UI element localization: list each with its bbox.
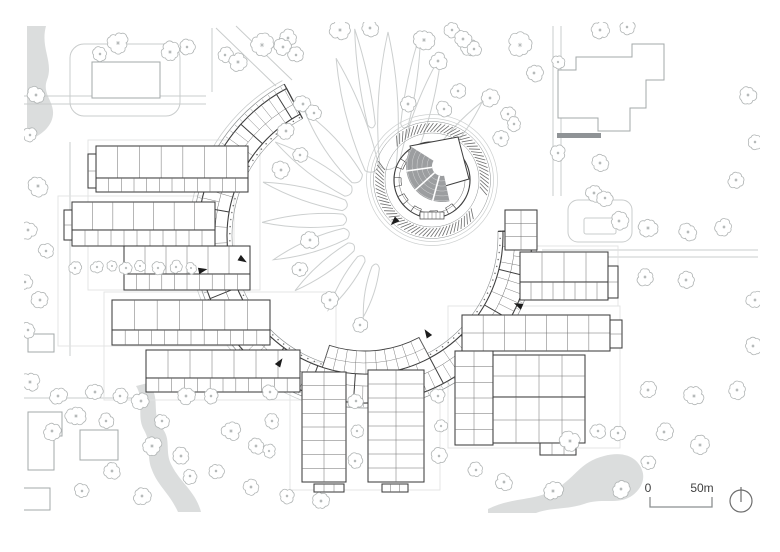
north-arrow-icon [730,487,752,512]
scale-bar: 0 50m [645,481,714,507]
site-plan-page: 0 50m [0,0,780,552]
scale-zero-label: 0 [645,481,652,495]
scale-max-label: 50m [690,481,713,495]
site-plan-drawing: 0 50m [0,0,780,552]
